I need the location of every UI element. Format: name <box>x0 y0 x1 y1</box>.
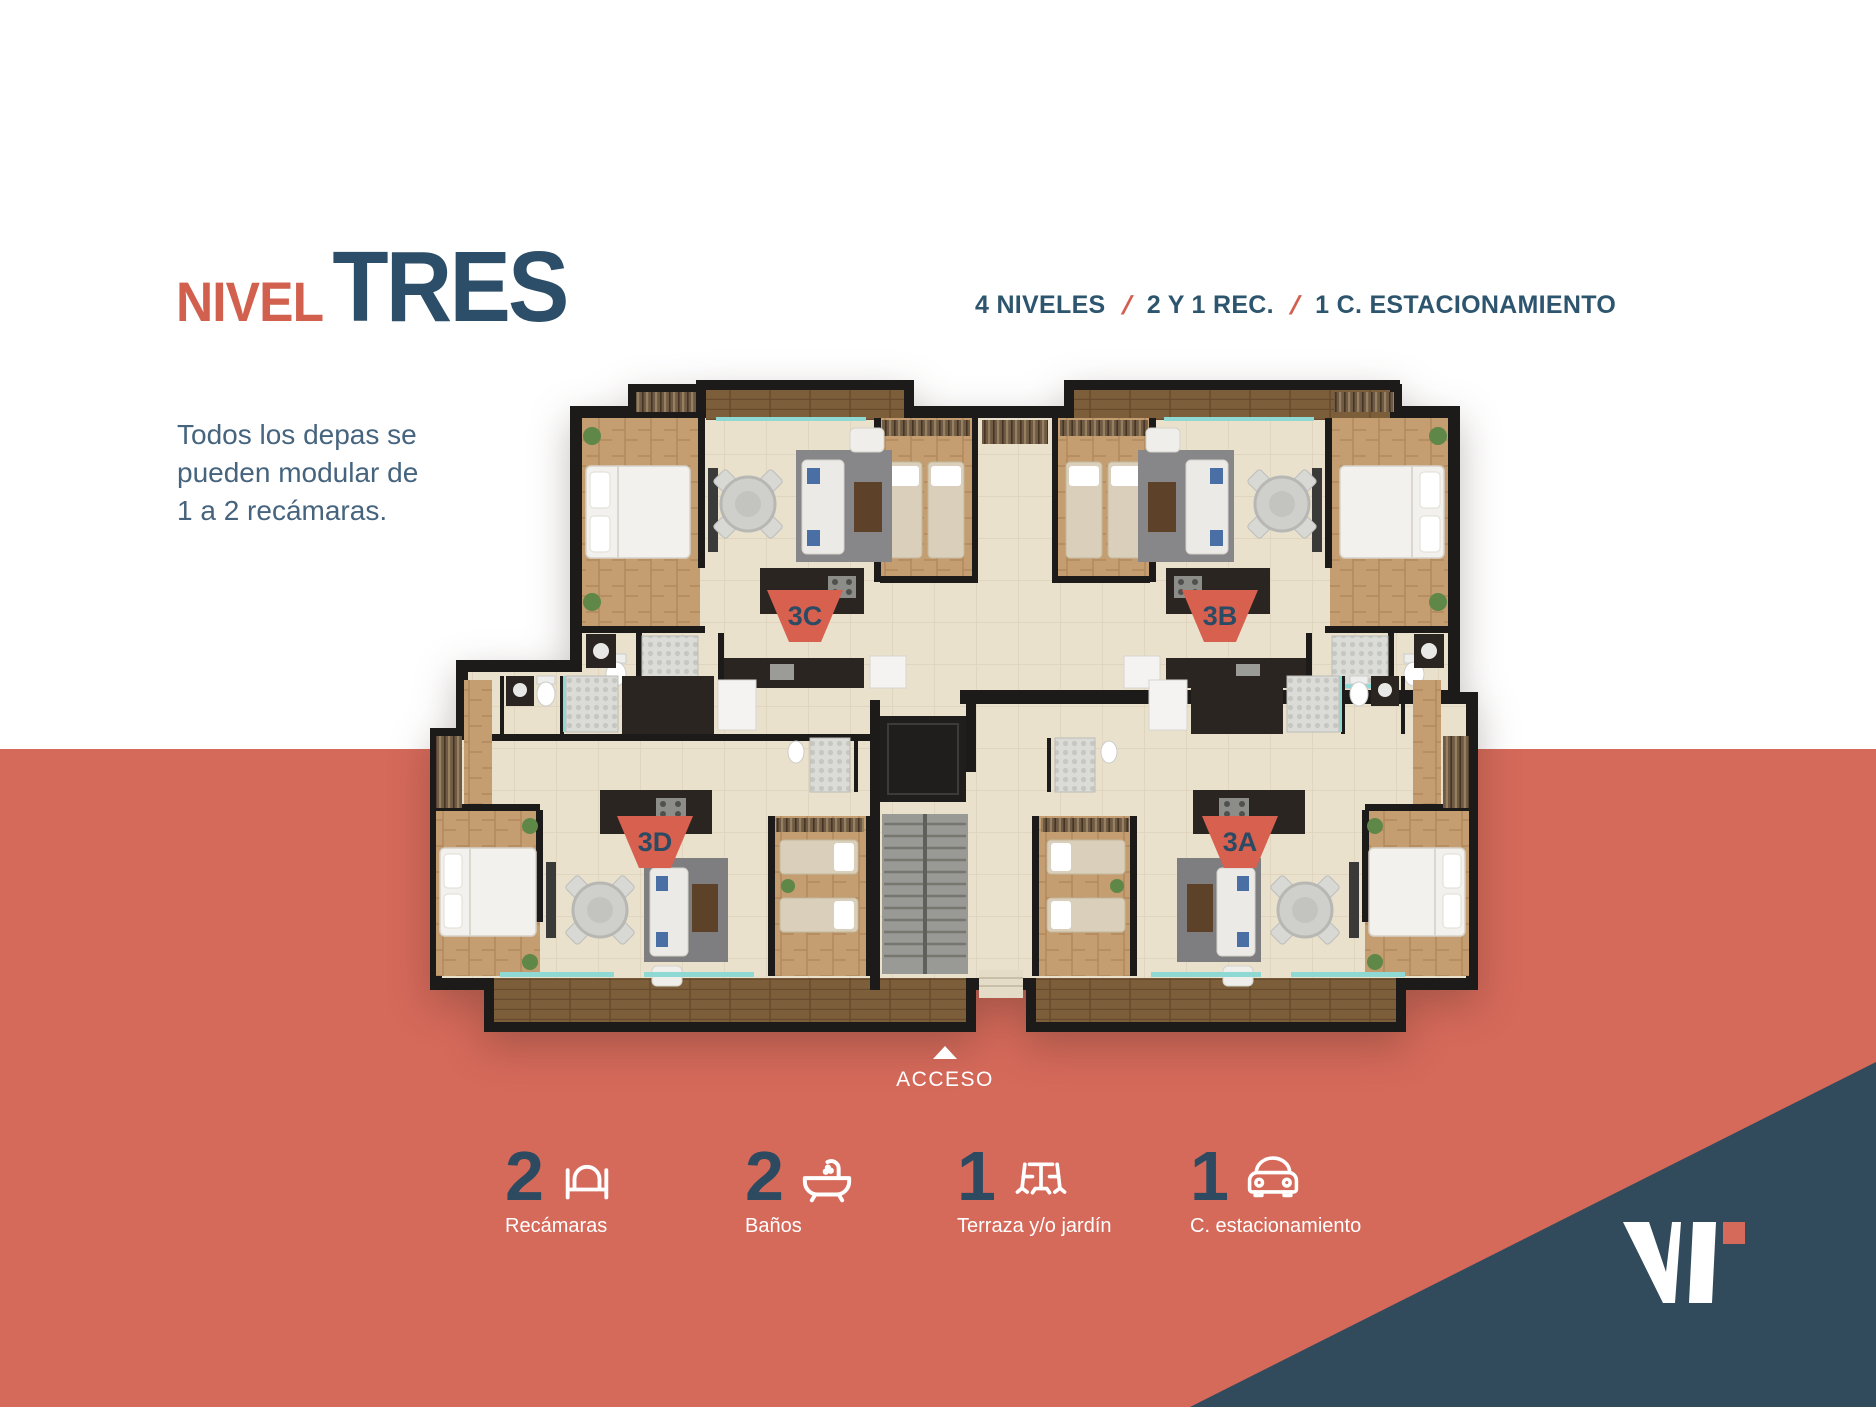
stat-parking: 1 C. estacionamiento <box>1190 1148 1361 1238</box>
description-line: Todos los depas se <box>177 416 418 454</box>
tv-console <box>546 862 556 938</box>
stat-bathrooms-label: Baños <box>745 1215 855 1238</box>
unit-badge-3d-label: 3D <box>638 827 673 857</box>
description-line: pueden modular de <box>177 454 418 492</box>
brand-logo <box>1623 1222 1745 1303</box>
logo-v-shape <box>1623 1222 1681 1303</box>
spec-parking: 1 C. ESTACIONAMIENTO <box>1315 291 1616 320</box>
king-bed <box>440 848 536 936</box>
terrace-icon <box>1011 1153 1071 1201</box>
stat-terrace-label: Terraza y/o jardín <box>957 1215 1112 1238</box>
spec-separator: / <box>1289 290 1301 321</box>
spec-levels: 4 NIVELES <box>975 291 1106 320</box>
stairs <box>882 814 968 974</box>
stat-terrace-value: 1 <box>957 1148 996 1205</box>
plant <box>583 593 601 611</box>
spec-bedrooms: 2 Y 1 REC. <box>1147 291 1274 320</box>
spec-separator: / <box>1120 290 1132 321</box>
title-main: TRES <box>332 230 566 345</box>
plant <box>522 954 538 970</box>
stat-parking-label: C. estacionamiento <box>1190 1215 1361 1238</box>
window <box>716 417 866 421</box>
title-prefix: NIVEL <box>176 269 323 334</box>
access-marker: ACCESO <box>878 1046 1012 1092</box>
stat-bedrooms-label: Recámaras <box>505 1215 615 1238</box>
description-line: 1 a 2 recámaras. <box>177 492 418 530</box>
unit-badge-3a-label: 3A <box>1223 827 1258 857</box>
logo-coral-square <box>1723 1222 1745 1244</box>
unit-badge-3b-label: 3B <box>1203 601 1238 631</box>
stat-bathrooms: 2 Baños <box>745 1148 855 1238</box>
stat-parking-value: 1 <box>1190 1148 1229 1205</box>
page-title: NIVEL TRES <box>176 230 567 345</box>
window <box>500 972 614 977</box>
plant <box>583 427 601 445</box>
description-text: Todos los depas se pueden modular de 1 a… <box>177 416 418 530</box>
stat-bathrooms-value: 2 <box>745 1148 784 1205</box>
plant <box>522 818 538 834</box>
stat-terrace: 1 Terraza y/o jardín <box>957 1148 1112 1238</box>
hall-closet <box>982 420 1048 444</box>
spec-list: 4 NIVELES / 2 Y 1 REC. / 1 C. ESTACIONAM… <box>975 290 1616 321</box>
unit-badge-3c-label: 3C <box>788 601 823 631</box>
floor-plan: 3C 3B 3D 3A <box>430 370 1508 1044</box>
access-arrow-icon <box>933 1046 957 1059</box>
stat-bedrooms-value: 2 <box>505 1148 544 1205</box>
car-icon <box>1244 1154 1302 1200</box>
access-label: ACCESO <box>878 1068 1012 1092</box>
bathtub-icon <box>799 1151 855 1203</box>
bed-icon <box>559 1152 615 1202</box>
stat-bedrooms: 2 Recámaras <box>505 1148 615 1238</box>
logo-stem <box>1689 1222 1716 1303</box>
window <box>644 972 754 977</box>
king-bed <box>586 466 690 558</box>
